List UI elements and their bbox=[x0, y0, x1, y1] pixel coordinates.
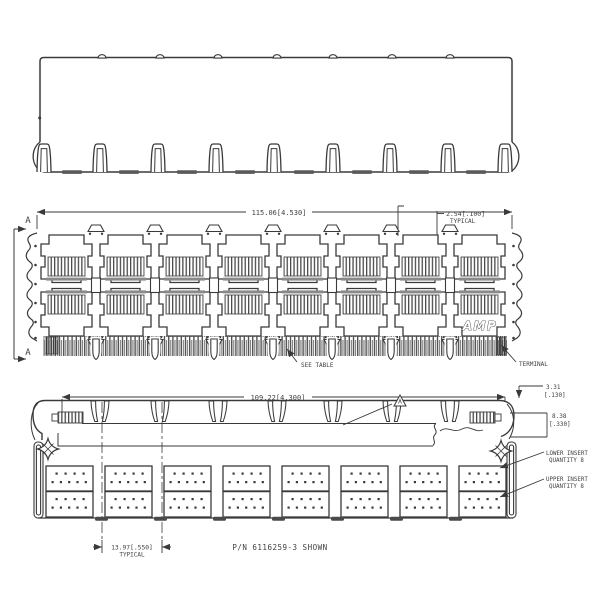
insert-block bbox=[341, 466, 388, 517]
housing-module bbox=[336, 289, 387, 337]
top-view-outline bbox=[40, 58, 512, 143]
upper-insert-label-2: QUANTITY 8 bbox=[549, 484, 584, 490]
housing-module bbox=[100, 289, 151, 337]
dim-pitch-qualifier: TYPICAL bbox=[450, 218, 476, 225]
alignment-target-right bbox=[491, 441, 512, 462]
bottom-view: 109.22[4.300] bbox=[31, 384, 588, 559]
housing-row-lower bbox=[41, 289, 505, 337]
section-label-top: A bbox=[25, 216, 31, 226]
lower-insert-label-2: QUANTITY 8 bbox=[549, 458, 584, 464]
dim-overall-width-label: 115.06[4.530] bbox=[252, 209, 307, 217]
housing-module bbox=[41, 235, 92, 283]
housing-module bbox=[218, 289, 269, 337]
housing-module bbox=[277, 289, 328, 337]
dim-height-1-mm: 3.31 bbox=[546, 384, 561, 391]
terminal-label: TERMINAL bbox=[519, 361, 548, 368]
insert-block bbox=[105, 466, 152, 517]
housing-module bbox=[454, 235, 505, 283]
housing-module bbox=[41, 289, 92, 337]
brand-logo: AMP bbox=[462, 319, 498, 333]
housing-module bbox=[395, 235, 446, 283]
dim-height-1-in: [.130] bbox=[544, 392, 566, 399]
insert-block bbox=[282, 466, 329, 517]
dim-height-1 bbox=[519, 386, 543, 398]
key-block-right bbox=[470, 412, 501, 423]
insert-blocks bbox=[46, 466, 506, 517]
housing-module bbox=[159, 235, 210, 283]
insert-block bbox=[164, 466, 211, 517]
left-castellated-edge bbox=[26, 233, 37, 341]
edge-dot bbox=[38, 117, 41, 120]
part-number-note: P/N 6116259-3 SHOWN bbox=[232, 543, 327, 552]
section-label-bottom: A bbox=[25, 348, 31, 358]
section-marker bbox=[14, 229, 26, 359]
housing-module bbox=[100, 235, 151, 283]
dim-insert-pitch-qualifier: TYPICAL bbox=[119, 552, 145, 559]
drawing-svg: 115.06[4.530] 2.54[.100] TYPICAL bbox=[0, 0, 600, 600]
mounting-feet bbox=[37, 144, 512, 172]
dim-insert-pitch-label: 13.97[.550] bbox=[111, 545, 153, 552]
dim-height-2-mm: 8.38 bbox=[552, 413, 567, 420]
right-castellated-edge bbox=[512, 233, 523, 341]
dim-height-2-in: [.330] bbox=[549, 421, 571, 428]
insert-block bbox=[459, 466, 506, 517]
top-view bbox=[33, 55, 519, 174]
terminal-block-left bbox=[45, 337, 58, 354]
top-row-keys bbox=[88, 225, 458, 235]
engineering-drawing-page: 115.06[4.530] 2.54[.100] TYPICAL bbox=[0, 0, 600, 600]
key-block-left bbox=[52, 412, 83, 423]
housing-module bbox=[395, 289, 446, 337]
upper-insert-label-1: UPPER INSERT bbox=[546, 477, 588, 483]
insert-block bbox=[223, 466, 270, 517]
dim-pitch-label: 2.54[.100] bbox=[446, 210, 485, 218]
insert-block bbox=[46, 466, 93, 517]
insert-block bbox=[400, 466, 447, 517]
housing-module bbox=[277, 235, 328, 283]
see-table-label: SEE TABLE bbox=[301, 362, 334, 369]
housing-module bbox=[218, 235, 269, 283]
body-inner-lines bbox=[58, 424, 483, 447]
lower-insert-label-1: LOWER INSERT bbox=[546, 451, 588, 457]
housing-module bbox=[336, 235, 387, 283]
middle-view: 115.06[4.530] 2.54[.100] TYPICAL bbox=[14, 206, 548, 369]
housing-row-upper bbox=[41, 235, 505, 283]
housing-module bbox=[159, 289, 210, 337]
dim-height-2 bbox=[510, 413, 547, 437]
dim-pitch bbox=[398, 206, 444, 236]
